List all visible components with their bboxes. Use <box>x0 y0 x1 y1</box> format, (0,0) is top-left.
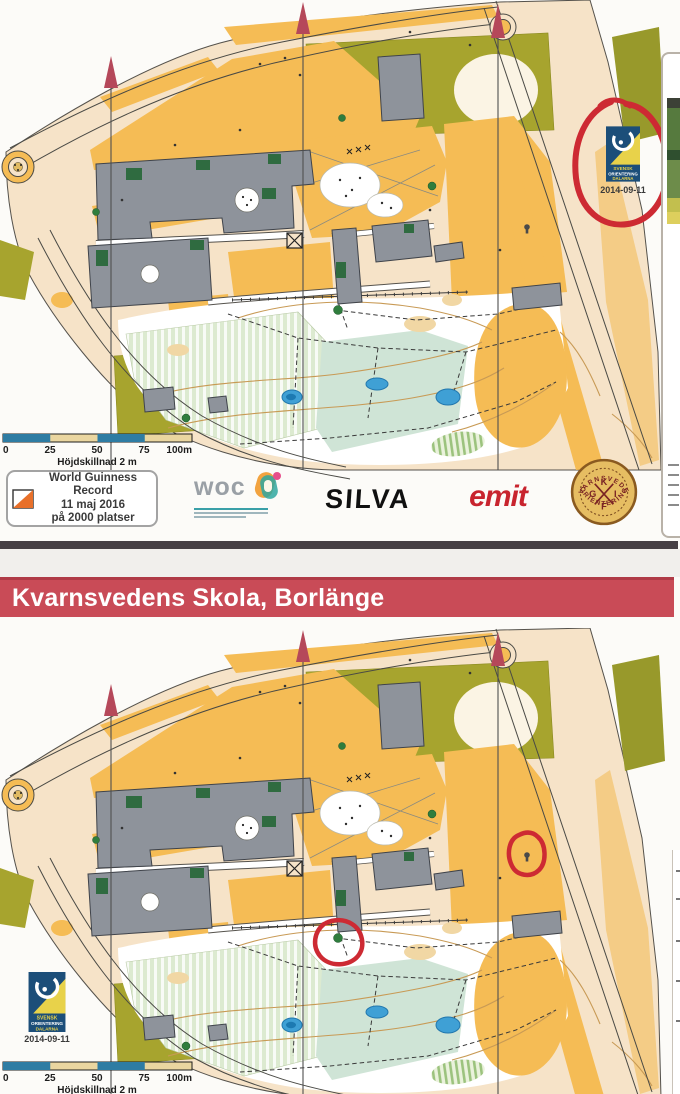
annotation-circle-tree <box>315 920 362 964</box>
woc-logo: woc <box>194 468 286 530</box>
club-letter-k: K <box>601 477 608 487</box>
club-letter-i: I <box>614 489 617 499</box>
kvarnsveden-club-badge: KVARNSVEDEN ORIENTERING K G I F <box>568 456 640 528</box>
page-title: Kvarnsvedens Skola, Borlänge <box>0 580 674 616</box>
adjacent-page-edge-bottom <box>672 850 680 1094</box>
title-banner: Kvarnsvedens Skola, Borlänge <box>0 577 674 617</box>
section-gap <box>0 549 680 577</box>
document-page: 0 25 50 75 100m Höjdskillnad 2 m SVENSK … <box>0 0 680 1094</box>
woc-small-text-bars <box>194 508 268 518</box>
emit-logo: emit <box>458 480 538 514</box>
section-divider <box>0 541 678 549</box>
control-flag-icon <box>12 489 34 509</box>
woc-label: woc <box>194 473 246 501</box>
club-letter-g: G <box>589 489 596 499</box>
record-line2: 11 maj 2016 <box>34 499 152 513</box>
guinness-record-box: World Guinness Record 11 maj 2016 på 200… <box>6 470 158 527</box>
record-line3: på 2000 platser <box>34 512 152 526</box>
adjacent-page-edge-top <box>661 52 680 538</box>
woc-emblem-icon <box>252 468 284 508</box>
annotation-circle-object <box>509 833 545 875</box>
silva-logo: SILVA <box>313 484 423 515</box>
record-line1: World Guinness Record <box>34 472 152 499</box>
club-letter-f: F <box>601 501 607 511</box>
annotation-layer-bottom <box>0 628 680 1094</box>
